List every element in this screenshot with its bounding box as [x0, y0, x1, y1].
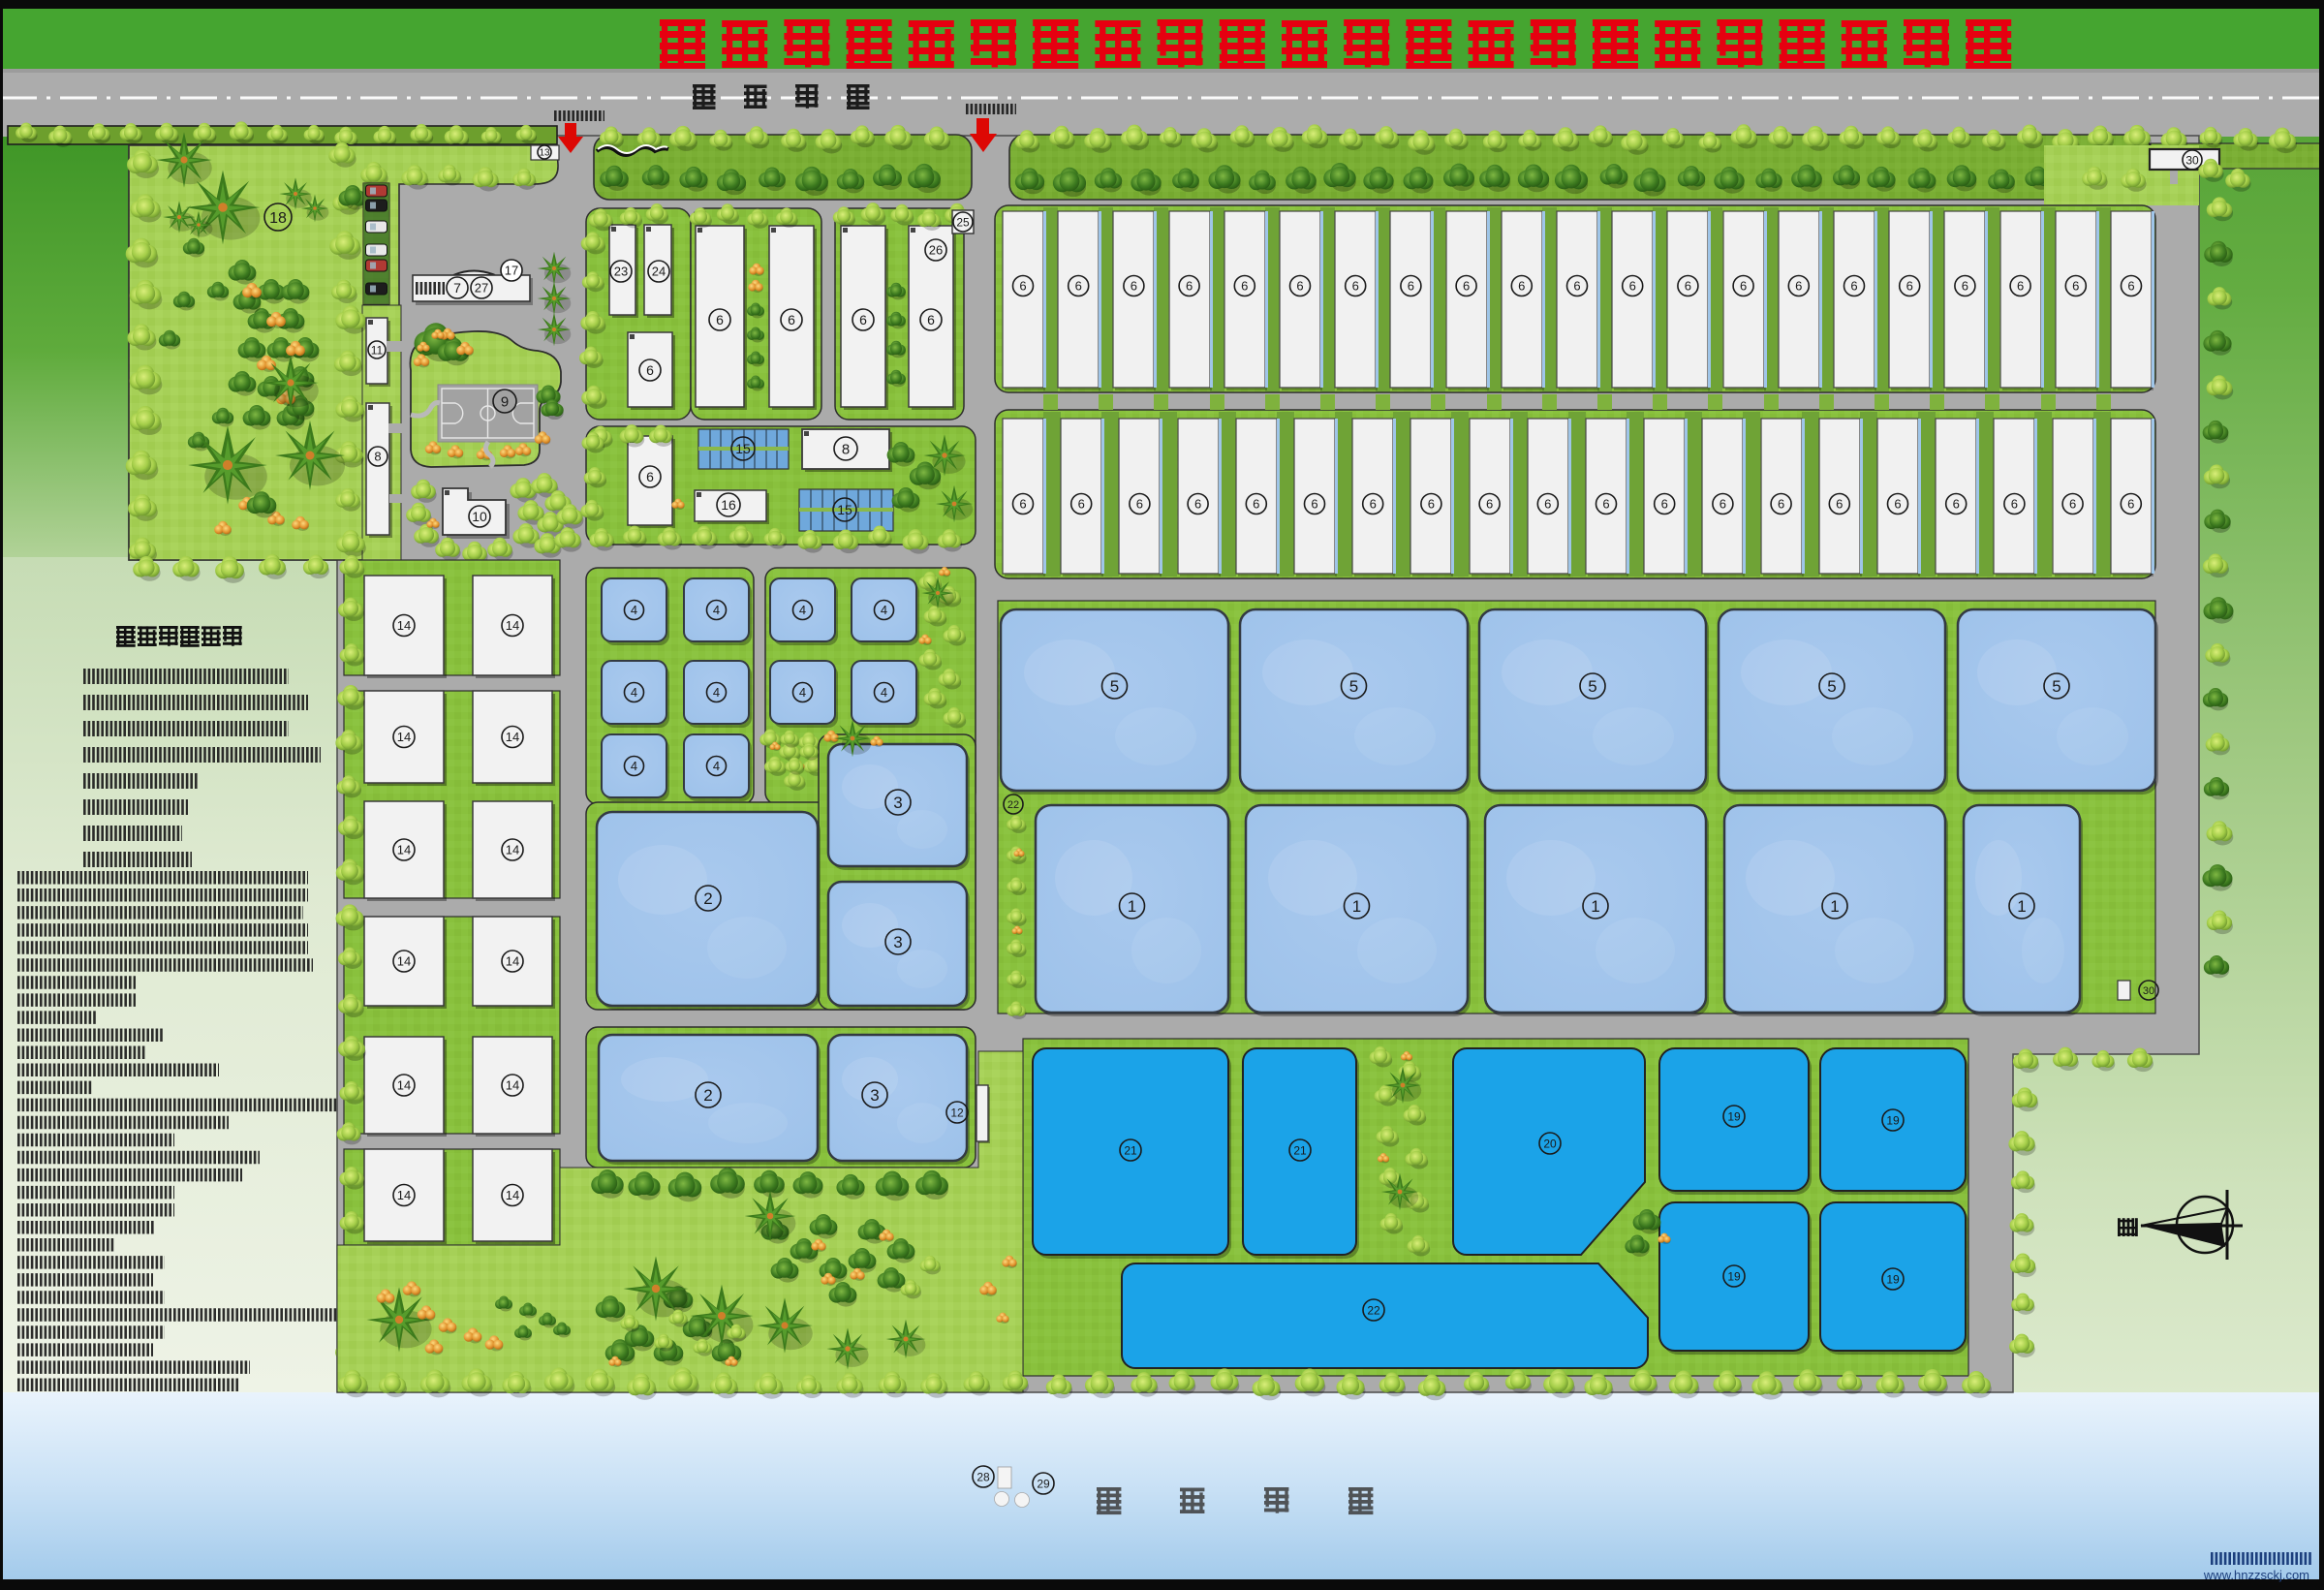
svg-text:14: 14 [506, 843, 519, 857]
svg-text:3: 3 [893, 933, 902, 951]
svg-text:5: 5 [1588, 677, 1596, 696]
svg-text:6: 6 [646, 469, 654, 484]
svg-text:1: 1 [1352, 897, 1361, 916]
svg-text:8: 8 [842, 441, 850, 457]
svg-text:30: 30 [2185, 153, 2199, 167]
svg-text:6: 6 [716, 312, 724, 327]
svg-text:6: 6 [1352, 279, 1359, 294]
svg-text:21: 21 [1124, 1143, 1137, 1157]
svg-text:6: 6 [1778, 497, 1784, 512]
svg-text:6: 6 [1850, 279, 1857, 294]
svg-text:19: 19 [1727, 1109, 1741, 1123]
svg-text:6: 6 [1311, 497, 1317, 512]
svg-text:4: 4 [631, 759, 637, 773]
svg-text:19: 19 [1886, 1272, 1900, 1286]
svg-text:14: 14 [397, 954, 411, 969]
svg-text:6: 6 [2127, 279, 2134, 294]
svg-text:6: 6 [1019, 497, 1026, 512]
svg-text:6: 6 [1629, 279, 1636, 294]
svg-text:9: 9 [501, 393, 509, 410]
svg-text:6: 6 [1894, 497, 1901, 512]
svg-text:6: 6 [2127, 497, 2134, 512]
svg-text:6: 6 [1186, 279, 1193, 294]
svg-text:6: 6 [1075, 279, 1082, 294]
svg-text:8: 8 [374, 450, 381, 464]
svg-text:6: 6 [1241, 279, 1248, 294]
svg-text:6: 6 [788, 312, 795, 327]
svg-text:30: 30 [2143, 985, 2154, 997]
svg-text:1: 1 [1128, 897, 1136, 916]
svg-text:6: 6 [1408, 279, 1414, 294]
svg-text:6: 6 [1136, 497, 1143, 512]
svg-text:18: 18 [269, 210, 287, 227]
svg-text:6: 6 [2011, 497, 2018, 512]
svg-text:25: 25 [956, 215, 970, 229]
svg-text:1: 1 [1830, 897, 1839, 916]
svg-text:6: 6 [1544, 497, 1551, 512]
svg-text:22: 22 [1007, 799, 1019, 811]
svg-text:6: 6 [927, 312, 935, 327]
svg-text:5: 5 [1110, 677, 1119, 696]
svg-text:6: 6 [1486, 497, 1493, 512]
svg-text:4: 4 [881, 603, 887, 617]
svg-text:27: 27 [475, 281, 488, 296]
svg-text:6: 6 [1685, 279, 1691, 294]
svg-text:13: 13 [539, 148, 550, 159]
svg-text:14: 14 [397, 618, 411, 633]
svg-text:19: 19 [1886, 1113, 1900, 1127]
svg-text:15: 15 [837, 502, 852, 517]
svg-text:6: 6 [2017, 279, 2024, 294]
svg-text:22: 22 [1367, 1303, 1380, 1317]
svg-text:6: 6 [1370, 497, 1377, 512]
svg-text:21: 21 [1293, 1143, 1307, 1157]
svg-text:6: 6 [1795, 279, 1802, 294]
svg-text:26: 26 [929, 243, 943, 258]
svg-text:5: 5 [1827, 677, 1836, 696]
svg-text:6: 6 [1296, 279, 1303, 294]
svg-text:14: 14 [397, 1188, 411, 1202]
svg-text:28: 28 [976, 1470, 990, 1483]
svg-text:6: 6 [859, 312, 867, 327]
svg-text:14: 14 [506, 1188, 519, 1202]
svg-text:14: 14 [506, 730, 519, 744]
svg-text:29: 29 [1037, 1477, 1050, 1490]
svg-text:6: 6 [1518, 279, 1525, 294]
svg-text:16: 16 [721, 497, 736, 513]
svg-text:5: 5 [1349, 677, 1358, 696]
svg-text:6: 6 [1602, 497, 1609, 512]
svg-text:6: 6 [1019, 279, 1026, 294]
svg-text:14: 14 [397, 730, 411, 744]
svg-text:4: 4 [713, 759, 720, 773]
svg-text:7: 7 [453, 280, 461, 296]
svg-text:6: 6 [1720, 497, 1726, 512]
svg-text:4: 4 [631, 685, 637, 700]
svg-text:11: 11 [371, 343, 384, 357]
svg-text:3: 3 [870, 1086, 879, 1105]
svg-text:6: 6 [1740, 279, 1747, 294]
svg-text:6: 6 [1953, 497, 1960, 512]
svg-text:6: 6 [646, 362, 654, 378]
svg-text:3: 3 [893, 794, 902, 812]
svg-text:14: 14 [397, 843, 411, 857]
svg-text:14: 14 [397, 1078, 411, 1093]
svg-text:4: 4 [713, 685, 720, 700]
svg-text:www.hnzzsckj.com: www.hnzzsckj.com [2203, 1568, 2309, 1582]
svg-text:4: 4 [881, 685, 887, 700]
svg-text:19: 19 [1727, 1269, 1741, 1283]
svg-text:14: 14 [506, 1078, 519, 1093]
svg-text:6: 6 [1962, 279, 1968, 294]
svg-text:14: 14 [506, 618, 519, 633]
svg-text:6: 6 [2069, 497, 2076, 512]
svg-text:6: 6 [1463, 279, 1470, 294]
svg-text:15: 15 [735, 441, 751, 456]
svg-text:4: 4 [799, 603, 806, 617]
svg-text:6: 6 [1131, 279, 1137, 294]
svg-text:6: 6 [1428, 497, 1435, 512]
svg-text:4: 4 [713, 603, 720, 617]
svg-text:12: 12 [950, 1106, 964, 1119]
svg-text:1: 1 [2017, 897, 2026, 916]
svg-text:5: 5 [2052, 677, 2061, 696]
svg-text:1: 1 [1591, 897, 1599, 916]
svg-text:6: 6 [1836, 497, 1843, 512]
svg-text:2: 2 [703, 889, 712, 908]
svg-text:14: 14 [506, 954, 519, 969]
svg-text:2: 2 [703, 1086, 712, 1105]
svg-text:6: 6 [1906, 279, 1913, 294]
svg-text:4: 4 [631, 603, 637, 617]
svg-text:6: 6 [1194, 497, 1201, 512]
svg-text:20: 20 [1543, 1137, 1557, 1150]
svg-text:4: 4 [799, 685, 806, 700]
svg-text:6: 6 [1573, 279, 1580, 294]
svg-text:10: 10 [472, 509, 487, 524]
svg-text:6: 6 [1253, 497, 1259, 512]
svg-text:6: 6 [2072, 279, 2079, 294]
svg-text:23: 23 [614, 265, 628, 279]
svg-text:17: 17 [505, 264, 518, 278]
svg-text:24: 24 [652, 265, 666, 279]
svg-text:6: 6 [1078, 497, 1085, 512]
svg-text:6: 6 [1661, 497, 1668, 512]
